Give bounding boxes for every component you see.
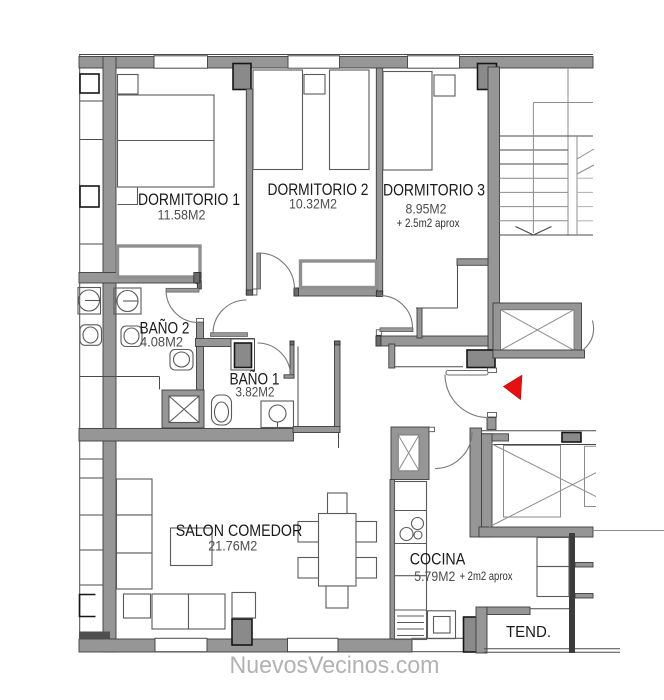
svg-text:DORMITORIO 3: DORMITORIO 3: [383, 181, 485, 200]
svg-text:11.58M2: 11.58M2: [158, 207, 206, 223]
svg-text:21.76M2: 21.76M2: [208, 538, 257, 554]
svg-text:COCINA: COCINA: [410, 550, 466, 569]
svg-text:8.95M2: 8.95M2: [406, 201, 447, 217]
svg-text:3.82M2: 3.82M2: [236, 384, 275, 400]
svg-text:TEND.: TEND.: [506, 624, 551, 641]
svg-text:10.32M2: 10.32M2: [289, 196, 337, 212]
svg-text:NuevosVecinos.com: NuevosVecinos.com: [230, 652, 440, 679]
svg-text:5.79M2: 5.79M2: [414, 568, 455, 584]
svg-text:+ 2.5m2 aprox: + 2.5m2 aprox: [397, 216, 460, 230]
svg-text:4.08M2: 4.08M2: [140, 334, 183, 350]
svg-text:+ 2m2 aprox: + 2m2 aprox: [460, 569, 513, 583]
